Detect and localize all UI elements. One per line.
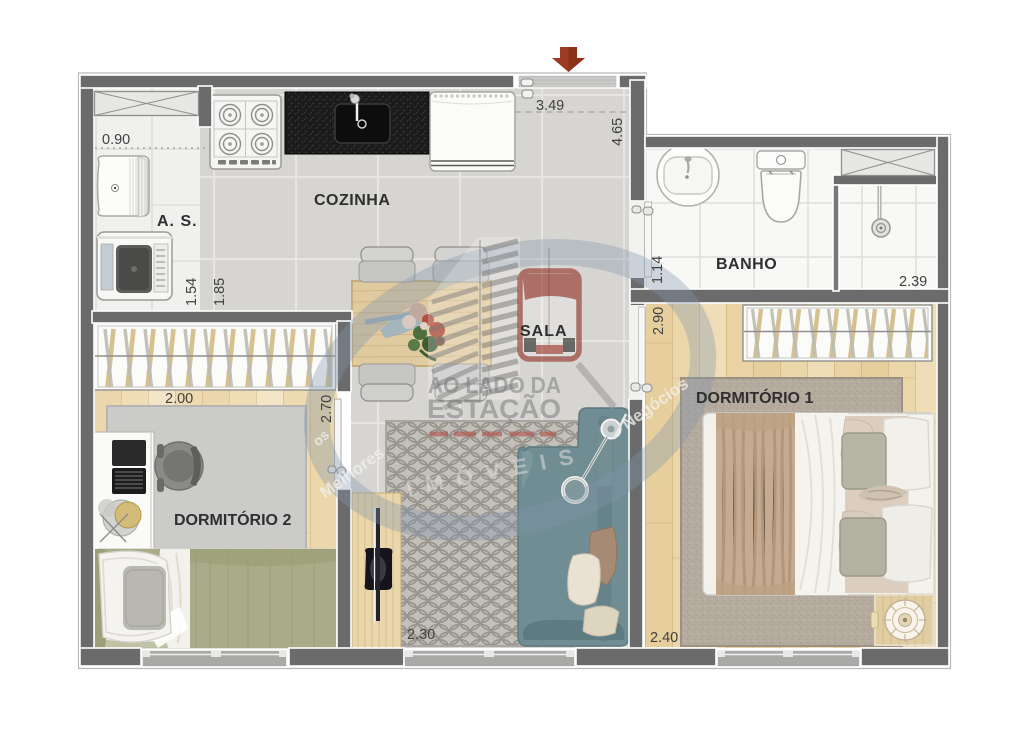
- svg-text:A. S.: A. S.: [157, 213, 198, 230]
- svg-text:COZINHA: COZINHA: [314, 192, 390, 209]
- svg-text:0.90: 0.90: [102, 132, 130, 148]
- svg-text:2.00: 2.00: [165, 391, 193, 407]
- svg-text:3.49: 3.49: [536, 98, 564, 114]
- svg-text:SALA: SALA: [520, 323, 568, 340]
- svg-text:1.14: 1.14: [650, 256, 666, 284]
- svg-text:1.54: 1.54: [184, 278, 200, 306]
- svg-text:2.30: 2.30: [407, 627, 435, 643]
- svg-text:1.85: 1.85: [212, 278, 228, 306]
- svg-text:2.40: 2.40: [650, 630, 678, 646]
- svg-text:BANHO: BANHO: [716, 256, 777, 273]
- svg-text:DORMITÓRIO 2: DORMITÓRIO 2: [174, 510, 291, 529]
- svg-text:2.90: 2.90: [651, 307, 667, 335]
- svg-text:DORMITÓRIO 1: DORMITÓRIO 1: [696, 388, 813, 407]
- svg-text:ESTAÇÃO: ESTAÇÃO: [427, 393, 561, 424]
- svg-text:4.65: 4.65: [610, 118, 626, 146]
- svg-text:2.39: 2.39: [899, 274, 927, 290]
- svg-text:2.70: 2.70: [319, 395, 335, 423]
